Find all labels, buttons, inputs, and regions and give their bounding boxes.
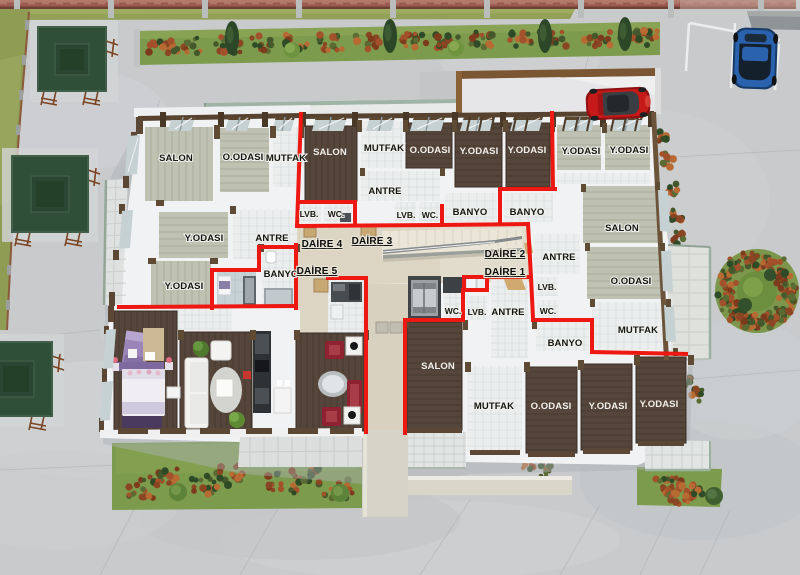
svg-text:SALON: SALON bbox=[313, 147, 347, 158]
svg-text:LVB.: LVB. bbox=[468, 307, 487, 317]
svg-text:BANYO: BANYO bbox=[510, 207, 545, 218]
svg-text:LVB.: LVB. bbox=[397, 210, 416, 220]
svg-text:MUTFAK: MUTFAK bbox=[618, 325, 658, 336]
svg-text:O.ODASI: O.ODASI bbox=[611, 276, 652, 287]
svg-text:BANYO: BANYO bbox=[548, 338, 583, 349]
svg-text:LVB.: LVB. bbox=[300, 209, 319, 219]
svg-text:ANTRE: ANTRE bbox=[368, 186, 401, 197]
svg-text:O.ODASI: O.ODASI bbox=[410, 145, 451, 156]
svg-text:Y.ODASI: Y.ODASI bbox=[610, 145, 649, 156]
svg-text:WC.: WC. bbox=[328, 209, 345, 219]
svg-text:O.ODASI: O.ODASI bbox=[223, 152, 264, 163]
svg-text:SALON: SALON bbox=[605, 223, 639, 234]
svg-text:DAİRE 4: DAİRE 4 bbox=[302, 237, 343, 250]
svg-text:ANTRE: ANTRE bbox=[491, 307, 524, 318]
svg-text:ANTRE: ANTRE bbox=[255, 233, 288, 244]
svg-text:WC.: WC. bbox=[540, 306, 557, 316]
svg-text:SALON: SALON bbox=[421, 361, 455, 372]
svg-text:DAİRE 3: DAİRE 3 bbox=[352, 234, 393, 247]
svg-text:ANTRE: ANTRE bbox=[542, 252, 575, 263]
svg-text:Y.ODASI: Y.ODASI bbox=[508, 145, 547, 156]
svg-text:SALON: SALON bbox=[159, 153, 193, 164]
svg-text:MUTFAK: MUTFAK bbox=[474, 401, 514, 412]
svg-text:Y.ODASI: Y.ODASI bbox=[165, 281, 204, 292]
svg-text:O.ODASI: O.ODASI bbox=[531, 401, 572, 412]
svg-text:DAİRE 2: DAİRE 2 bbox=[485, 247, 526, 260]
svg-text:MUTFAK: MUTFAK bbox=[266, 153, 306, 164]
svg-text:Y.ODASI: Y.ODASI bbox=[562, 146, 601, 157]
svg-text:DAİRE 5: DAİRE 5 bbox=[297, 264, 338, 277]
svg-text:Y.ODASI: Y.ODASI bbox=[460, 146, 499, 157]
svg-text:Y.ODASI: Y.ODASI bbox=[640, 399, 679, 410]
svg-text:MUTFAK: MUTFAK bbox=[364, 143, 404, 154]
svg-text:Y.ODASI: Y.ODASI bbox=[185, 233, 224, 244]
svg-text:LVB.: LVB. bbox=[538, 282, 557, 292]
svg-text:BANYO: BANYO bbox=[264, 269, 299, 280]
svg-text:Y.ODASI: Y.ODASI bbox=[589, 401, 628, 412]
svg-text:DAİRE 1: DAİRE 1 bbox=[485, 265, 526, 278]
svg-text:WC.: WC. bbox=[445, 306, 462, 316]
svg-text:WC.: WC. bbox=[422, 210, 439, 220]
svg-text:BANYO: BANYO bbox=[453, 207, 488, 218]
